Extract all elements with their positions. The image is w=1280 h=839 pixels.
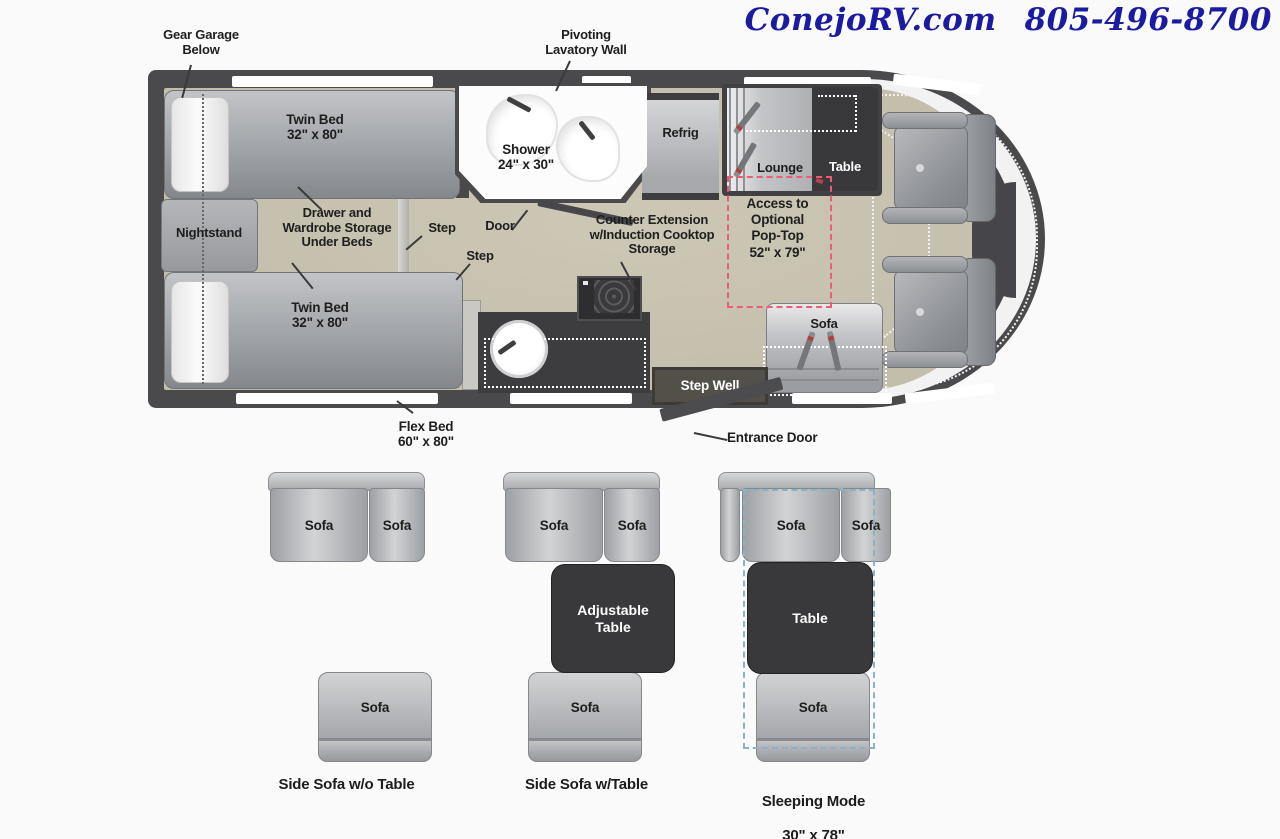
table-dotted-line-h <box>746 130 856 132</box>
side-sofa-body: Sofa <box>318 672 432 742</box>
sofa-cushion-label: Sofa <box>618 518 646 533</box>
chair-armrest <box>882 207 968 224</box>
dealer-watermark: ConejoRV.com805-496-8700 <box>745 2 1272 38</box>
sofa-cushion-left: Sofa <box>505 488 603 562</box>
sofa-cushion-label: Sofa <box>305 518 333 533</box>
entrance-door-label: Entrance Door <box>727 430 831 445</box>
config3-caption: Sleeping Mode 30" x 78" <box>735 776 892 839</box>
window-bottom-2 <box>510 393 632 404</box>
chair-armrest <box>882 351 968 368</box>
config3-caption-title: Sleeping Mode <box>735 793 892 810</box>
sofa-cushion-label: Sofa <box>383 518 411 533</box>
gear-garage-label: Gear Garage Below <box>158 28 244 57</box>
chair-swivel-dot <box>916 164 924 172</box>
config2-caption: Side Sofa w/Table <box>508 776 665 793</box>
sofa-cushion-left: Sofa <box>270 488 368 562</box>
window-bottom-1 <box>236 393 438 404</box>
config2-sofa-pair: Sofa Sofa <box>503 472 660 562</box>
side-sofa-backrest <box>528 738 642 762</box>
shower-label: Shower 24" x 30" <box>482 142 570 172</box>
chair-seat <box>894 270 968 354</box>
counter-extension-label: Counter Extension w/Induction Cooktop St… <box>582 213 722 257</box>
nightstand-label: Nightstand <box>163 226 255 241</box>
side-sofa-label: Sofa <box>571 700 599 715</box>
refrig-label: Refrig <box>644 126 717 141</box>
side-sofa-backrest <box>318 738 432 762</box>
door-label: Door <box>478 219 522 234</box>
chair-swivel-dot <box>916 308 924 316</box>
lounge-label: Lounge <box>752 161 808 176</box>
entrance-door-leader <box>694 432 728 441</box>
table-label: Table <box>820 160 870 175</box>
pivoting-lavatory-label: Pivoting Lavatory Wall <box>516 28 656 57</box>
flex-bed-label: Flex Bed 60" x 80" <box>378 419 474 449</box>
chair-armrest <box>882 256 968 273</box>
config3-caption-size: 30" x 78" <box>735 827 892 839</box>
table-dotted-line-v <box>855 95 857 132</box>
sofa-armrest-panel <box>720 488 740 562</box>
dealer-phone-text: 805-496-8700 <box>1025 2 1272 38</box>
cooktop-control <box>583 281 588 285</box>
side-sofa-body: Sofa <box>528 672 642 742</box>
chair-seat <box>894 126 968 210</box>
cooktop-rings <box>594 280 634 313</box>
captain-chair-passenger <box>882 256 996 368</box>
sofa-cushion-right: Sofa <box>369 488 425 562</box>
pillow-bottom <box>171 281 229 383</box>
side-sofa-label: Sofa <box>361 700 389 715</box>
sofa-cushion-label: Sofa <box>540 518 568 533</box>
rv-floorplan-page: ConejoRV.com805-496-8700 Twin Bed 32" x … <box>0 0 1280 839</box>
chair-armrest <box>882 112 968 129</box>
config2-adjustable-table: Adjustable Table <box>551 564 675 673</box>
captain-chair-driver <box>882 112 996 224</box>
dealer-site-text: ConejoRV.com <box>745 2 997 38</box>
config1-caption: Side Sofa w/o Table <box>268 776 425 793</box>
refrigerator <box>642 93 719 200</box>
step-lower-label: Step <box>458 249 502 264</box>
config1-sofa-pair: Sofa Sofa <box>268 472 425 562</box>
pillow-top <box>171 97 229 192</box>
twin-bed-bottom-label: Twin Bed 32" x 80" <box>245 300 395 330</box>
under-bed-storage-label: Drawer and Wardrobe Storage Under Beds <box>254 206 420 250</box>
sofa-label: Sofa <box>800 317 848 332</box>
step-upper-label: Step <box>420 221 464 236</box>
sofa-cushion-right: Sofa <box>604 488 660 562</box>
window-top-1 <box>232 76 433 87</box>
twin-bed-top-label: Twin Bed 32" x 80" <box>240 112 390 142</box>
config3-table: Table <box>747 562 873 674</box>
poptop-label: Access to Optional Pop-Top 52" x 79" <box>729 196 826 261</box>
table-dotted-line-top <box>818 95 855 97</box>
